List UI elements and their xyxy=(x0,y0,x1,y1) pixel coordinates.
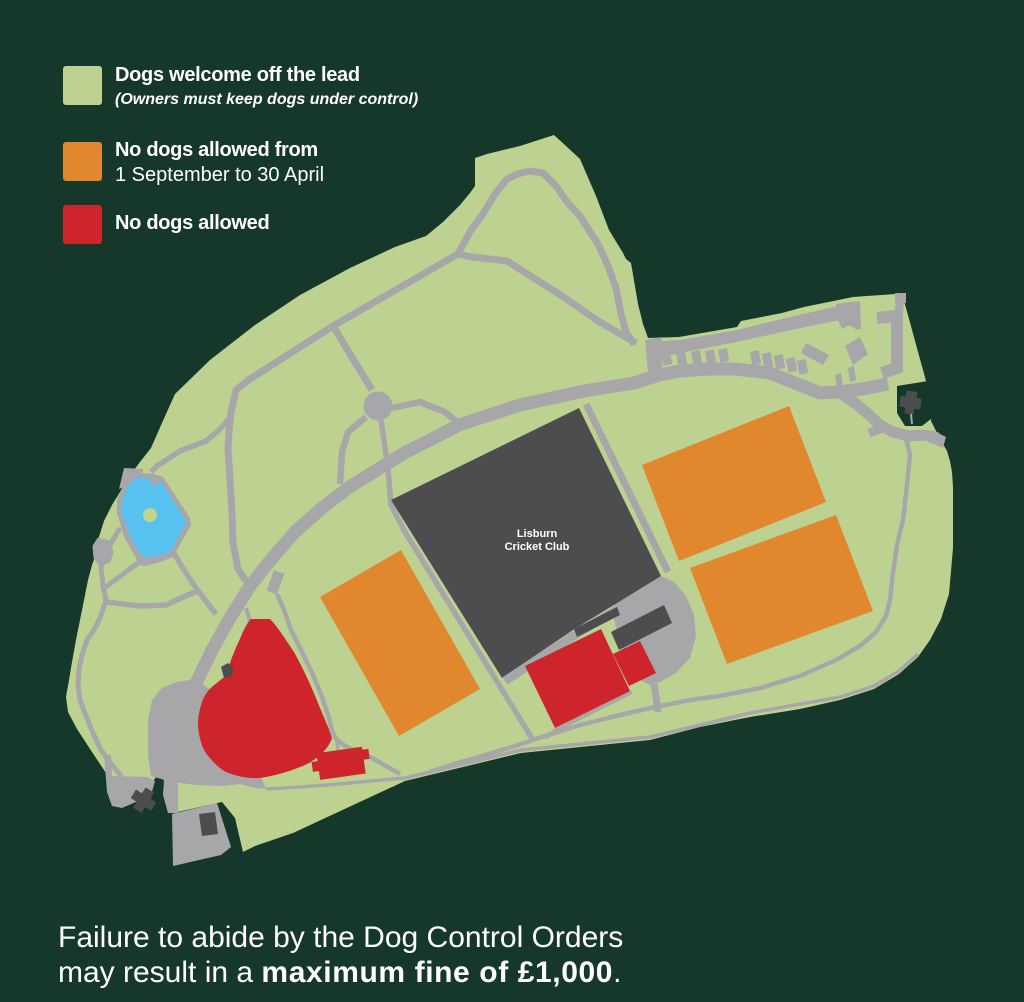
svg-text:Lisburn: Lisburn xyxy=(517,528,558,540)
svg-text:Cricket Club: Cricket Club xyxy=(505,541,570,553)
